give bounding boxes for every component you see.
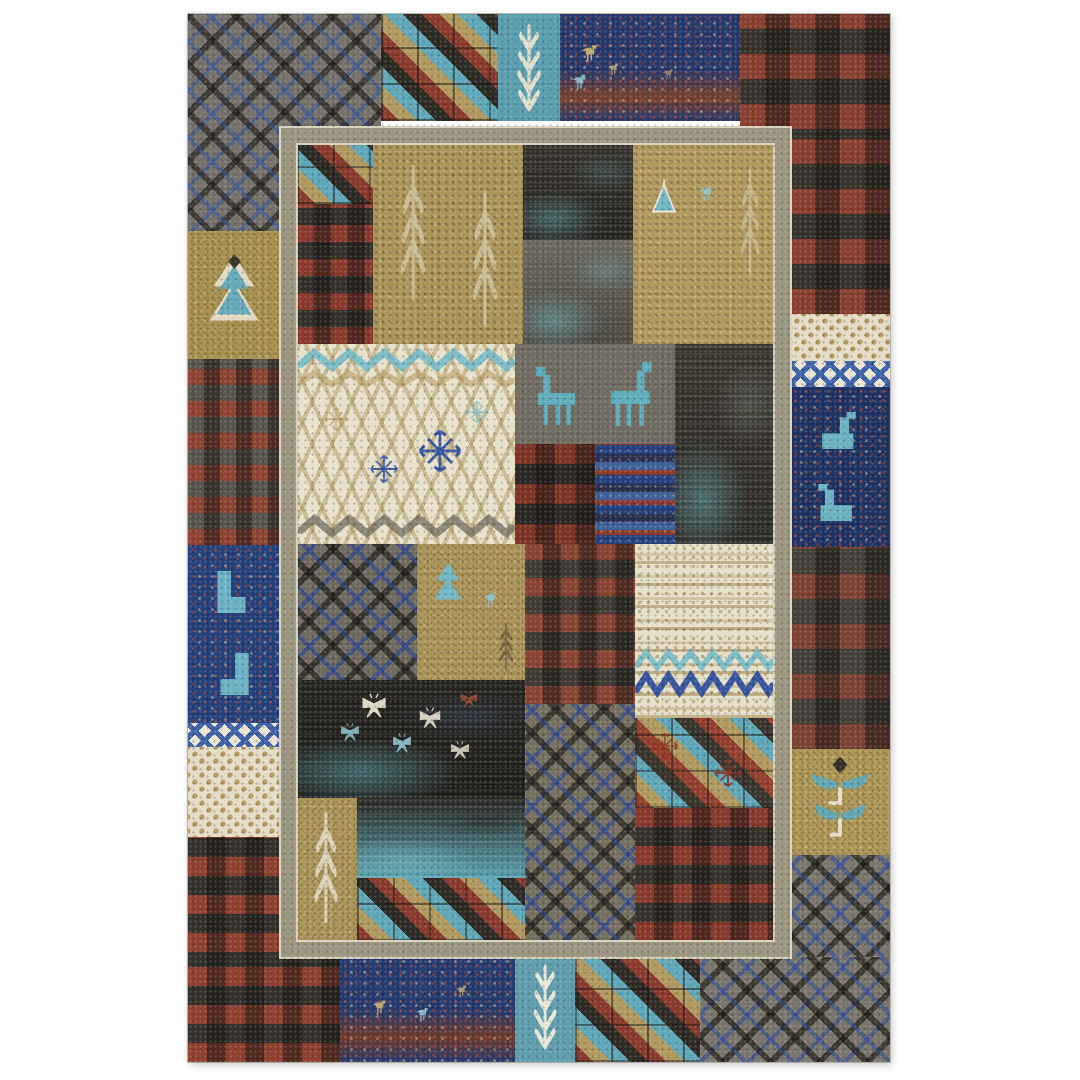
product-photo-canvas — [0, 0, 1080, 1080]
panel-r-tan-tulip — [790, 749, 890, 855]
arrowup-icon — [523, 960, 567, 1054]
panel-r-navy-ducks — [790, 387, 890, 547]
panel-b-navy-birds — [340, 952, 515, 1062]
panel-l-checker-multi — [188, 359, 281, 545]
bird-icon — [368, 996, 390, 1018]
panel-l-zigzag — [188, 723, 281, 747]
panel-tr-checker-col — [790, 129, 890, 314]
hook-icon — [208, 561, 260, 623]
bird-icon — [604, 60, 622, 78]
panel-b-teal-pine — [515, 952, 575, 1062]
inner-border-frame — [281, 128, 790, 957]
panel-bl-checker-col — [188, 837, 281, 952]
duck-icon — [806, 475, 862, 531]
bird-icon — [576, 40, 602, 66]
bird-icon — [412, 1004, 432, 1024]
panel-r-lattice — [790, 314, 890, 361]
bird-icon — [452, 982, 470, 1000]
rug-photo — [188, 14, 890, 1062]
panel-l-lattice — [188, 747, 281, 837]
diamond-icon — [226, 253, 243, 270]
panel-b-triangle-patch — [575, 952, 700, 1062]
arrowpair-icon — [210, 261, 258, 331]
panel-l-tan-arrow — [188, 231, 281, 359]
panel-bl-checker-bottom — [188, 952, 340, 1062]
panel-br-ikat-bottom — [700, 957, 890, 1062]
bird-icon — [568, 70, 590, 94]
panel-r-checker2 — [790, 547, 890, 749]
panel-tr-checker-top — [740, 14, 890, 129]
bird-icon — [660, 66, 676, 82]
panel-l-navy-hooks — [188, 545, 281, 723]
hook-icon — [206, 643, 258, 705]
panel-top-teal-pine — [498, 14, 560, 121]
panel-top-navy-birds — [560, 14, 740, 121]
panel-br-ikat-col — [790, 855, 890, 957]
duck-icon — [812, 403, 868, 459]
panel-r-zigzag — [790, 361, 890, 387]
panel-top-triangle-patch — [381, 14, 498, 121]
arrowup-icon — [506, 20, 552, 116]
tulip-icon — [808, 799, 872, 847]
